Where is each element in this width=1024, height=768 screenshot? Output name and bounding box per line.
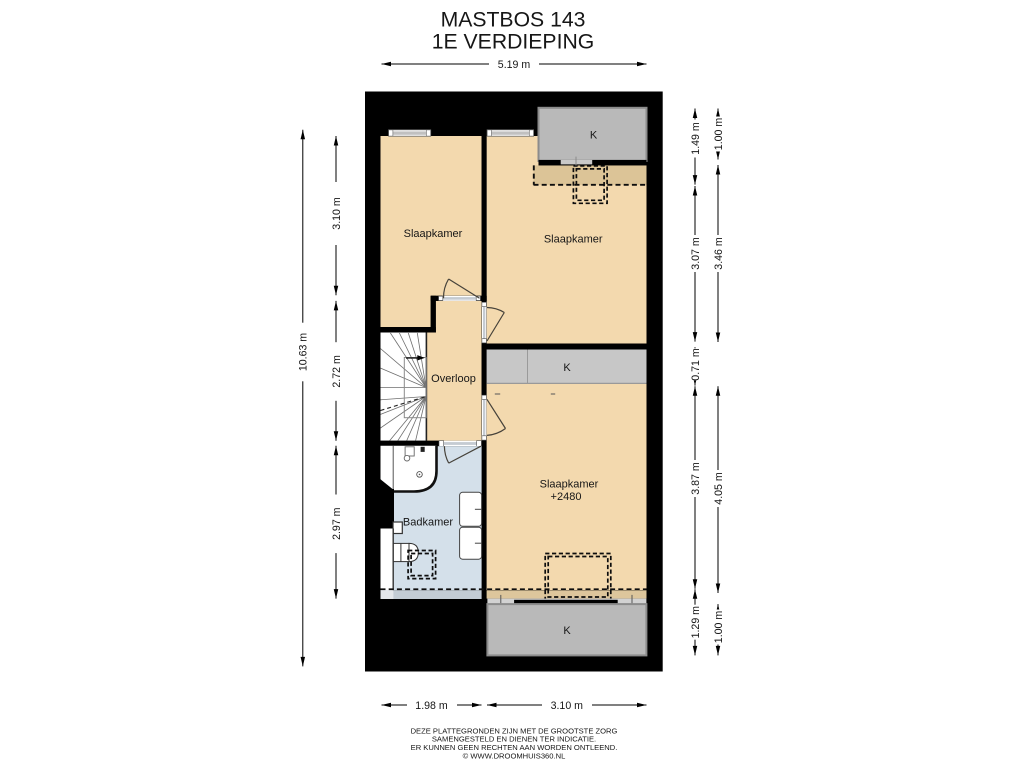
svg-text:3.07 m: 3.07 m (690, 237, 702, 270)
svg-text:1.00 m: 1.00 m (713, 611, 725, 644)
svg-text:+2480: +2480 (551, 491, 582, 503)
svg-text:0.71 m: 0.71 m (690, 348, 702, 381)
svg-text:3.87 m: 3.87 m (690, 462, 702, 495)
svg-text:3.10 m: 3.10 m (551, 700, 584, 712)
svg-text:K: K (563, 625, 571, 637)
svg-text:10.63 m: 10.63 m (298, 333, 310, 371)
svg-text:K: K (590, 130, 598, 142)
svg-text:Slaapkamer: Slaapkamer (404, 228, 463, 240)
svg-text:Badkamer: Badkamer (403, 517, 453, 529)
svg-text:© WWW.DROOMHUIS360.NL: © WWW.DROOMHUIS360.NL (463, 752, 566, 761)
svg-text:1.29 m: 1.29 m (690, 606, 702, 639)
svg-text:Slaapkamer: Slaapkamer (540, 479, 599, 491)
svg-text:MASTBOS 143: MASTBOS 143 (441, 9, 586, 32)
svg-text:3.46 m: 3.46 m (713, 237, 725, 270)
svg-text:2.97 m: 2.97 m (331, 507, 343, 540)
svg-text:2.72 m: 2.72 m (331, 355, 343, 388)
svg-text:1E VERDIEPING: 1E VERDIEPING (432, 31, 595, 54)
svg-text:K: K (563, 362, 571, 374)
svg-text:1.49 m: 1.49 m (690, 122, 702, 155)
svg-text:5.19 m: 5.19 m (498, 59, 531, 71)
svg-text:4.05 m: 4.05 m (713, 472, 725, 505)
svg-text:1.98 m: 1.98 m (415, 700, 448, 712)
svg-text:3.10 m: 3.10 m (331, 197, 343, 230)
svg-text:Overloop: Overloop (431, 373, 476, 385)
svg-text:1.00 m: 1.00 m (713, 118, 725, 151)
svg-text:Slaapkamer: Slaapkamer (544, 234, 603, 246)
